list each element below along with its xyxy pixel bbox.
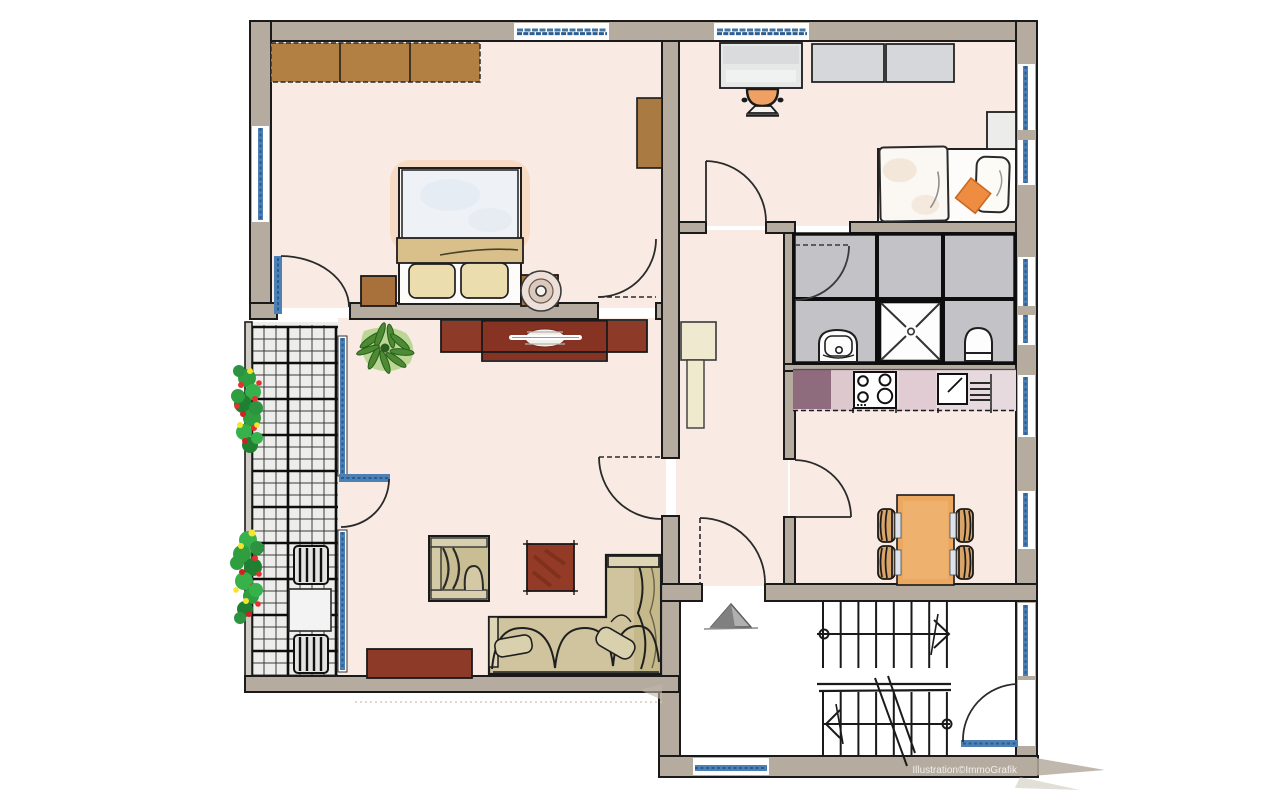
- svg-text:Illustration©ImmoGrafik: Illustration©ImmoGrafik: [912, 765, 1018, 776]
